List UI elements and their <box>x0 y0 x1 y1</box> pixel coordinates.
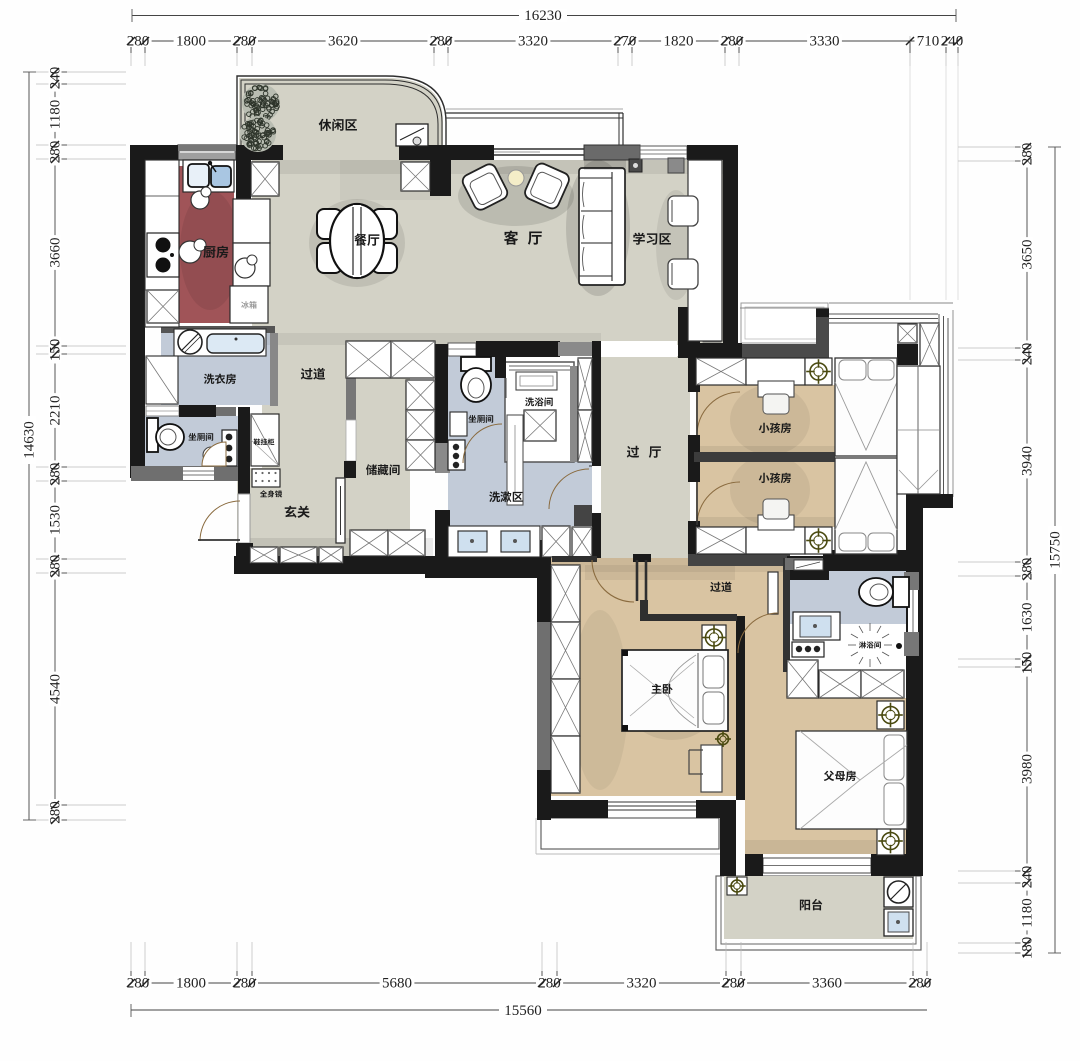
svg-text:14630: 14630 <box>22 421 38 459</box>
svg-text:15750: 15750 <box>1048 531 1064 569</box>
svg-text:16230: 16230 <box>524 8 562 24</box>
svg-text:3320: 3320 <box>627 976 657 992</box>
svg-text:2210: 2210 <box>48 396 64 426</box>
svg-text:3660: 3660 <box>48 238 64 268</box>
svg-text:3650: 3650 <box>1020 240 1036 270</box>
svg-text:150: 150 <box>48 339 64 362</box>
svg-text:1800: 1800 <box>176 34 206 50</box>
svg-text:1630: 1630 <box>1020 603 1036 633</box>
svg-text:150: 150 <box>1020 652 1036 675</box>
svg-text:3320: 3320 <box>518 34 548 50</box>
svg-text:180: 180 <box>1020 937 1036 960</box>
svg-text:710: 710 <box>917 34 940 50</box>
svg-text:3360: 3360 <box>812 976 842 992</box>
svg-text:240: 240 <box>1020 866 1036 889</box>
svg-text:3620: 3620 <box>328 34 358 50</box>
svg-text:5680: 5680 <box>382 976 412 992</box>
svg-text:3980: 3980 <box>1020 754 1036 784</box>
svg-text:1820: 1820 <box>664 34 694 50</box>
svg-text:15560: 15560 <box>504 1003 542 1019</box>
svg-text:240: 240 <box>48 67 64 90</box>
svg-text:3330: 3330 <box>810 34 840 50</box>
svg-text:3940: 3940 <box>1020 446 1036 476</box>
svg-text:4540: 4540 <box>48 674 64 704</box>
svg-text:240: 240 <box>1020 343 1036 366</box>
svg-text:1530: 1530 <box>48 505 64 535</box>
svg-text:1800: 1800 <box>176 976 206 992</box>
svg-text:1180: 1180 <box>48 100 64 129</box>
svg-text:240: 240 <box>941 34 964 50</box>
svg-text:1180: 1180 <box>1020 898 1036 927</box>
